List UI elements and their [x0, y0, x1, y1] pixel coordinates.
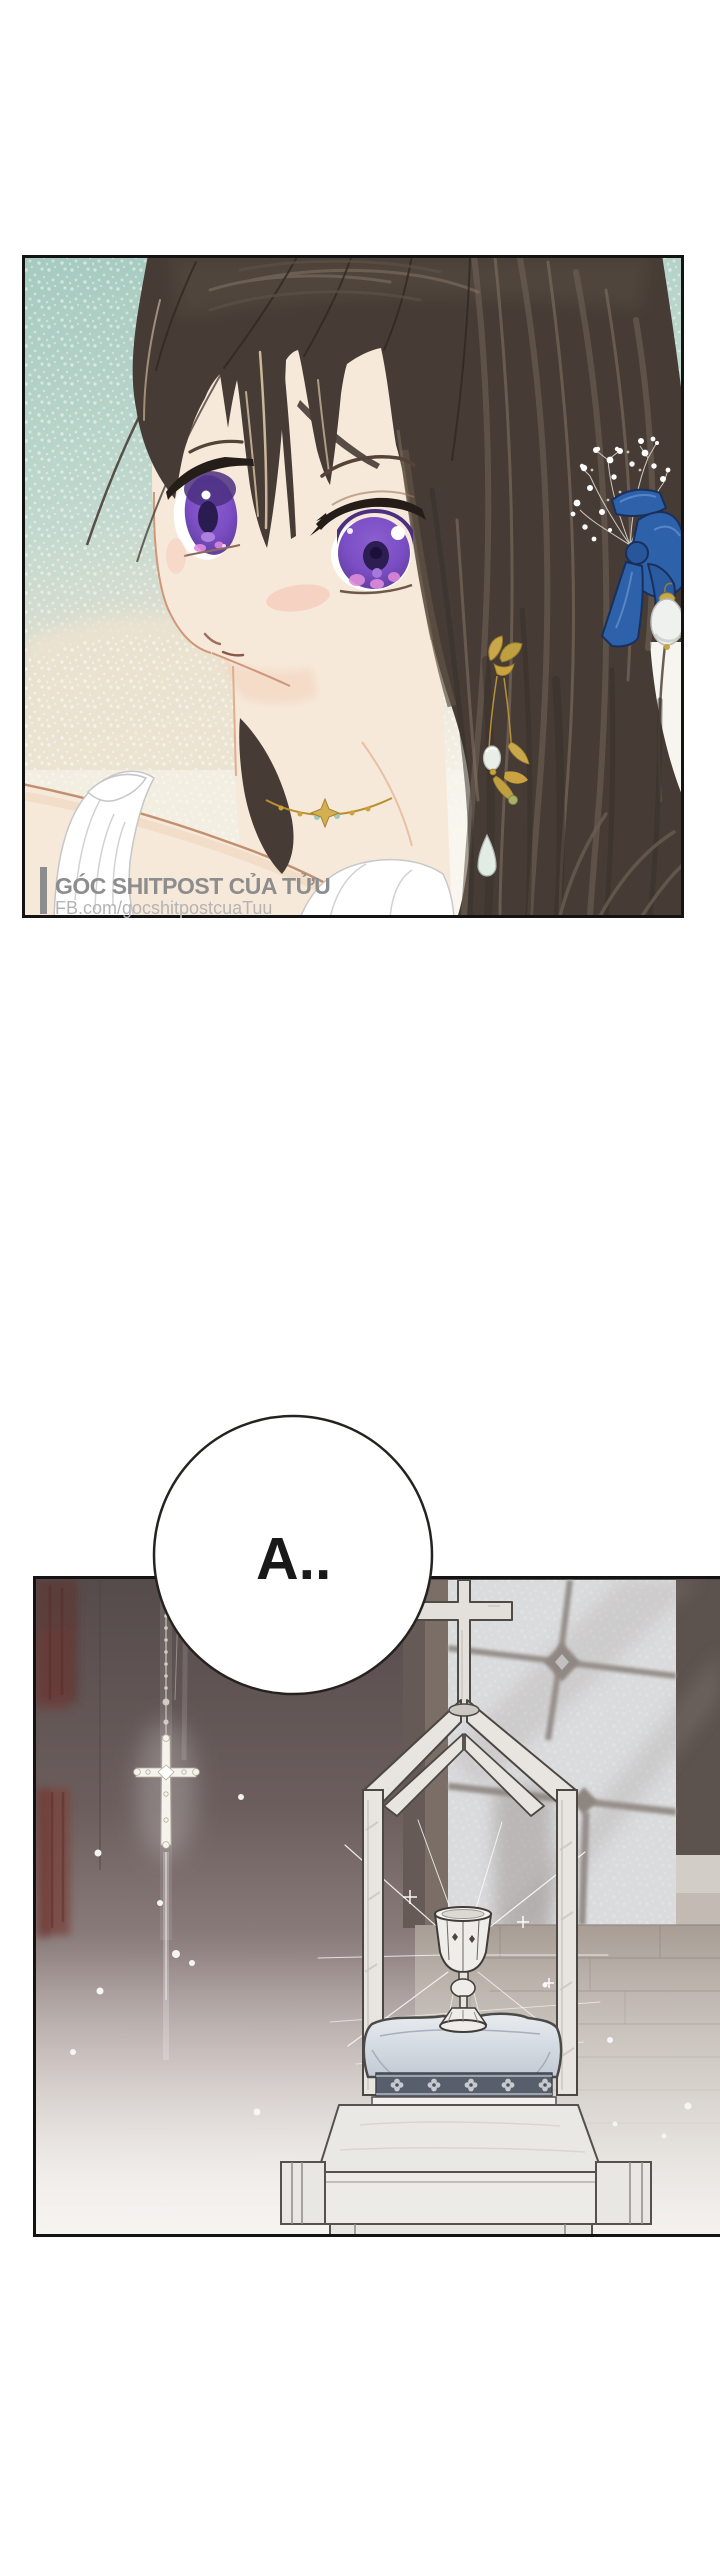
svg-text:A..: A.. — [256, 1526, 331, 1592]
svg-text:FB.com/gocshitpostcuaTuu: FB.com/gocshitpostcuaTuu — [55, 898, 272, 918]
svg-text:GÓC SHITPOST CỦA TỬU: GÓC SHITPOST CỦA TỬU — [55, 871, 330, 899]
